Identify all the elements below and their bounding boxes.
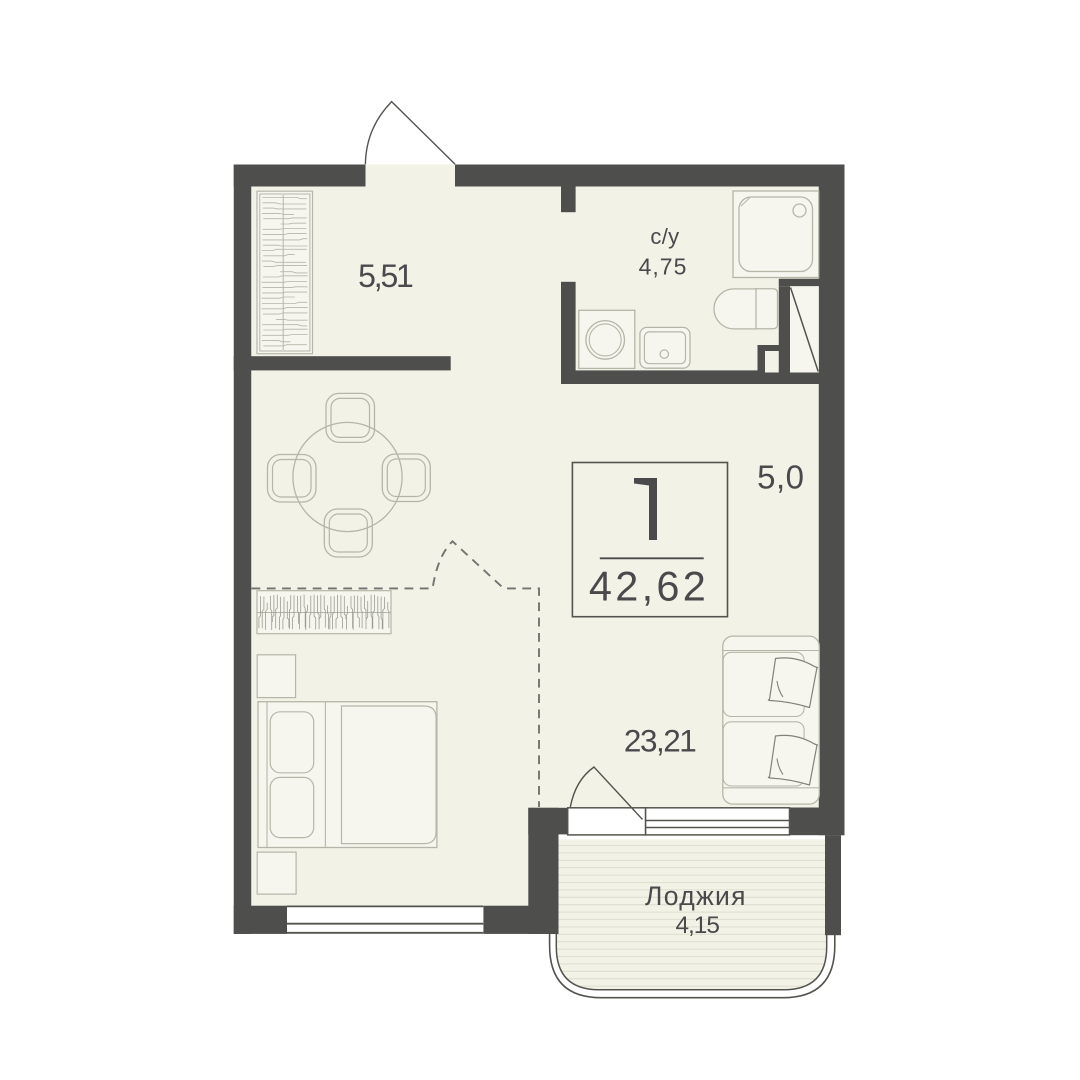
svg-text:4,15: 4,15 [675,912,719,939]
svg-text:Лоджия: Лоджия [645,881,747,911]
svg-text:23,21: 23,21 [624,723,695,759]
svg-text:42,62: 42,62 [589,563,709,610]
svg-text:4,75: 4,75 [639,253,688,279]
svg-text:5,0: 5,0 [757,459,804,496]
svg-text:с/у: с/у [650,224,679,249]
svg-text:5,51: 5,51 [358,258,413,294]
